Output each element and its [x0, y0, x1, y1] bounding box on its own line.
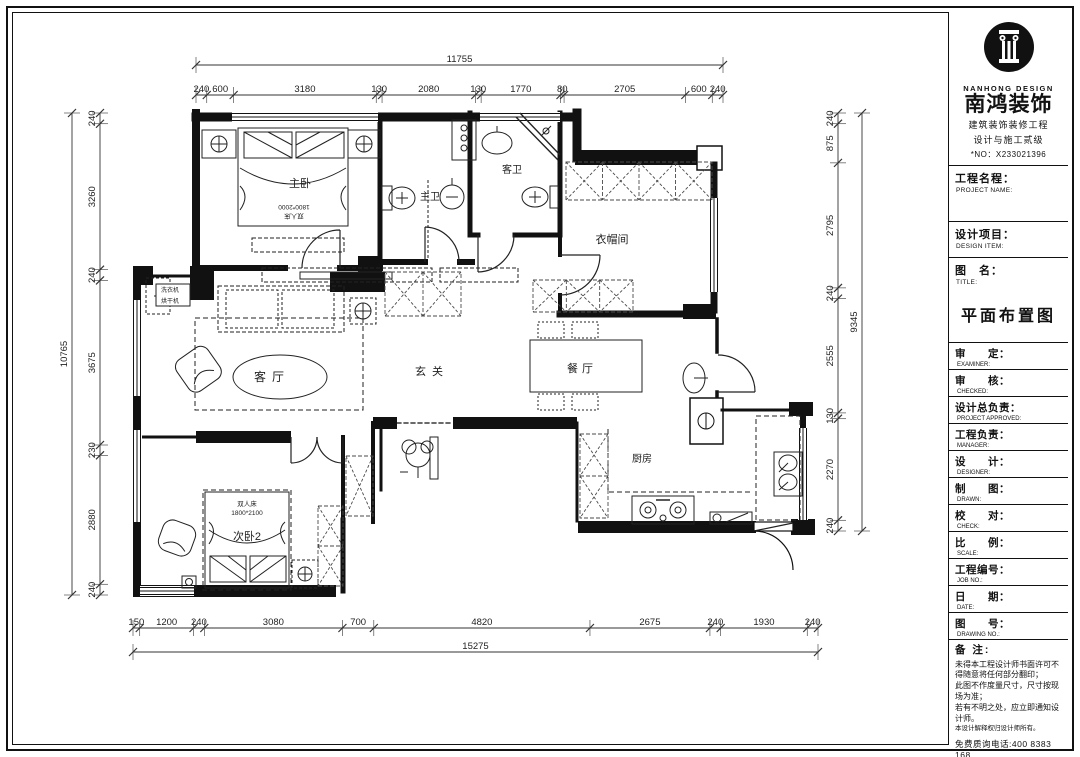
room-label: 次卧2	[233, 529, 261, 543]
row-label-en: SCALE:	[949, 550, 1068, 557]
dimension-chain: 2408752795240255513022702409345	[825, 109, 870, 535]
dimension-label: 15275	[462, 641, 488, 652]
room-label: 客卫	[502, 163, 522, 176]
dimension-chain: 24032602403675230288024010765	[59, 109, 108, 599]
room-label: 玄关	[415, 364, 449, 378]
wardrobe-box	[566, 162, 712, 200]
dimension-label: 80	[557, 84, 568, 95]
notes-title: 备 注:	[955, 644, 1063, 658]
dimension-label: 2795	[825, 215, 836, 236]
dimension-label: 3180	[294, 84, 315, 95]
annotation-label: 1800*2000	[278, 203, 310, 210]
dimension-label: 130	[470, 84, 486, 95]
dimension-label: 2705	[614, 84, 635, 95]
dimension-label: 1930	[753, 617, 774, 628]
drawing-name-label-en: TITLE:	[949, 278, 1068, 286]
dimension-label: 4820	[471, 617, 492, 628]
dimension-label: 240	[87, 110, 98, 126]
dimension-label: 240	[710, 84, 726, 95]
project-name-box: 工程名程： PROJECT NAME:	[949, 166, 1068, 222]
title-block-row: 校 对：CHECK:	[949, 505, 1068, 532]
title-block-row: 图 号：DRAWING NO.:	[949, 613, 1068, 640]
notes-lines: 未得本工程设计师书面许可不得随意将任何部分翻印；此图不作度量尺寸，尺寸按现场为准…	[955, 660, 1063, 734]
floor-plan-canvas: 主卧主卫客卫衣帽间客厅玄关餐厅厨房次卧21800*2000双人床双人床1800*…	[0, 0, 1080, 757]
drawing-title: 平面布置图	[949, 302, 1068, 326]
row-label-cn: 工程负责：	[949, 424, 1068, 442]
dimension-label: 600	[691, 84, 707, 95]
dimension-label: 875	[825, 135, 836, 151]
dimension-label: 240	[707, 617, 723, 628]
dimension-chain: 1501200240308070048202675240193024015275	[128, 617, 822, 660]
design-item-label-cn: 设计项目：	[949, 222, 1068, 242]
design-item-label-en: DESIGN ITEM:	[949, 242, 1068, 250]
note-line: 此图不作度量尺寸，尺寸按现场为准；	[955, 681, 1063, 702]
title-block-row: 制 图：DRAWN:	[949, 478, 1068, 505]
room-label: 厨房	[632, 452, 652, 465]
title-block-row: 设 计：DESIGNER:	[949, 451, 1068, 478]
dimension-label: 1770	[510, 84, 531, 95]
dimension-chain: 2406003180130208013017708027056002401175…	[192, 54, 727, 103]
dimension-label: 600	[212, 84, 228, 95]
drawing-sheet: 主卧主卫客卫衣帽间客厅玄关餐厅厨房次卧21800*2000双人床双人床1800*…	[0, 0, 1080, 757]
certificate-line-1: 建筑装饰装修工程	[949, 118, 1068, 131]
dimension-label: 3080	[263, 617, 284, 628]
dimension-label: 2880	[87, 509, 98, 530]
row-label-en: PROJECT APPROVED:	[949, 415, 1068, 422]
row-label-cn: 设计总负责：	[949, 397, 1068, 415]
wardrobe-box	[385, 272, 461, 316]
wardrobe-box	[580, 434, 608, 518]
company-logo-icon	[980, 20, 1038, 78]
project-name-label-en: PROJECT NAME:	[949, 186, 1068, 194]
row-label-cn: 设 计：	[949, 451, 1068, 469]
project-name-label-cn: 工程名程：	[949, 166, 1068, 186]
annotation-label: 洗衣机	[161, 286, 179, 294]
dimension-label: 240	[825, 110, 836, 126]
dimension-label: 240	[191, 617, 207, 628]
wardrobe-box	[533, 280, 633, 312]
certificate-number: *NO：X233021396	[949, 149, 1068, 160]
dimension-label: 230	[87, 442, 98, 458]
annotation-label: 烘干机	[161, 297, 179, 305]
dimension-label: 3675	[87, 352, 98, 373]
drawing-name-label-cn: 图 名：	[949, 258, 1068, 278]
dimension-label: 10765	[59, 341, 70, 367]
row-label-en: EXAMINER:	[949, 361, 1068, 368]
dimension-label: 700	[350, 617, 366, 628]
title-block-row: 工程负责：MANAGER:	[949, 424, 1068, 451]
room-label: 客厅	[254, 369, 290, 384]
annotation-label: 1800*2100	[231, 510, 263, 517]
furniture-layer	[146, 113, 802, 590]
row-label-cn: 日 期：	[949, 586, 1068, 604]
dimension-label: 3260	[87, 186, 98, 207]
row-label-cn: 工程编号：	[949, 559, 1068, 577]
room-label: 主卧	[289, 177, 311, 190]
company-logo-section: NANHONG DESIGN 南鸿装饰 建筑装饰装修工程 设计与施工贰级 *NO…	[949, 12, 1068, 166]
title-block-row: 审 定：EXAMINER:	[949, 343, 1068, 370]
dimension-label: 240	[825, 285, 836, 301]
title-block-row: 工程编号：JOB NO.:	[949, 559, 1068, 586]
dimension-label: 9345	[849, 311, 860, 332]
drawing-name-box: 图 名： TITLE: 平面布置图	[949, 258, 1068, 343]
dimension-label: 240	[193, 84, 209, 95]
dimension-label: 240	[87, 267, 98, 283]
title-block: NANHONG DESIGN 南鸿装饰 建筑装饰装修工程 设计与施工贰级 *NO…	[948, 12, 1068, 745]
row-label-en: DATE:	[949, 604, 1068, 611]
dimension-label: 2555	[825, 345, 836, 366]
row-label-en: MANAGER:	[949, 442, 1068, 449]
dimension-label: 2675	[639, 617, 660, 628]
wardrobe-box	[318, 506, 343, 586]
dimension-label: 11755	[447, 54, 473, 65]
certificate-line-2: 设计与施工贰级	[949, 133, 1068, 146]
title-block-row: 比 例：SCALE:	[949, 532, 1068, 559]
room-label: 餐厅	[567, 361, 597, 375]
dimension-label: 240	[87, 582, 98, 598]
row-label-en: JOB NO.:	[949, 577, 1068, 584]
row-label-en: CHECKED:	[949, 388, 1068, 395]
annotation-label: 双人床	[284, 212, 304, 221]
title-block-row: 设计总负责：PROJECT APPROVED:	[949, 397, 1068, 424]
dimension-label: 130	[371, 84, 387, 95]
row-label-cn: 制 图：	[949, 478, 1068, 496]
row-label-cn: 比 例：	[949, 532, 1068, 550]
dimension-label: 1200	[156, 617, 177, 628]
note-line: 本设计解释权归设计师所有。	[955, 725, 1063, 733]
dimension-label: 130	[825, 408, 836, 424]
row-label-en: DRAWN:	[949, 496, 1068, 503]
annotation-label: 双人床	[237, 499, 257, 508]
row-label-en: DESIGNER:	[949, 469, 1068, 476]
row-label-cn: 校 对：	[949, 505, 1068, 523]
design-item-box: 设计项目： DESIGN ITEM:	[949, 222, 1068, 258]
row-label-en: CHECK:	[949, 523, 1068, 530]
dimension-label: 240	[805, 617, 821, 628]
note-line: 若有不明之处，应立即通知设计师。	[955, 703, 1063, 724]
dimension-label: 2080	[418, 84, 439, 95]
dimension-label: 240	[825, 518, 836, 534]
hotline-text: 免费质询电话:400 8383 168	[955, 739, 1063, 757]
row-label-en: DRAWING NO.:	[949, 631, 1068, 638]
row-label-cn: 图 号：	[949, 613, 1068, 631]
room-label: 衣帽间	[596, 232, 629, 246]
company-name-en: NANHONG DESIGN	[949, 84, 1068, 93]
note-line: 未得本工程设计师书面许可不得随意将任何部分翻印；	[955, 660, 1063, 681]
room-label: 主卫	[420, 191, 440, 203]
title-block-rows: 审 定：EXAMINER:审 核：CHECKED:设计总负责：PROJECT A…	[949, 343, 1068, 640]
wardrobe-box	[346, 456, 373, 516]
dimension-label: 150	[128, 617, 144, 628]
title-block-row: 日 期：DATE:	[949, 586, 1068, 613]
title-block-row: 审 核：CHECKED:	[949, 370, 1068, 397]
dimension-label: 2270	[825, 459, 836, 480]
row-label-cn: 审 定：	[949, 343, 1068, 361]
company-name-cn: 南鸿装饰	[949, 93, 1068, 116]
notes-section: 备 注: 未得本工程设计师书面许可不得随意将任何部分翻印；此图不作度量尺寸，尺寸…	[949, 640, 1068, 757]
row-label-cn: 审 核：	[949, 370, 1068, 388]
